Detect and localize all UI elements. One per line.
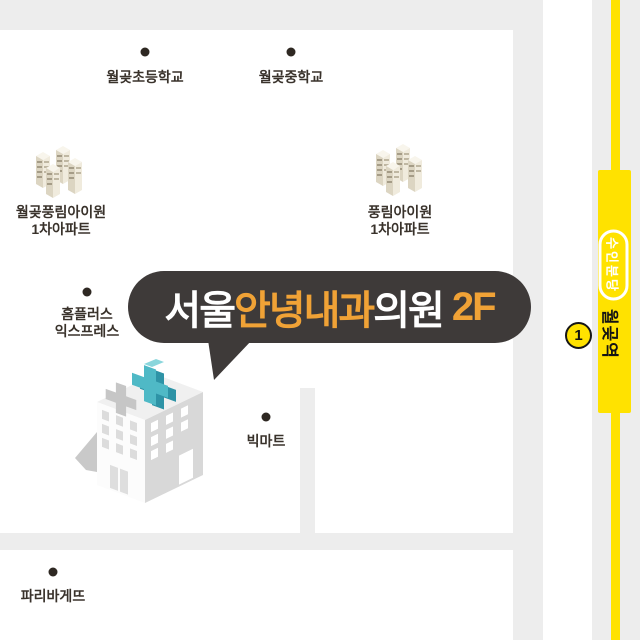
apartment-tower — [386, 162, 400, 196]
station-exit-number: 1 — [574, 327, 582, 344]
apartment-right-label-line2: 1차아파트 — [368, 221, 432, 238]
bubble-tail — [198, 338, 258, 382]
map-canvas: 수인분당 월곶역 1 월곶초등학교 월곶중학교 월곶풍림아이원 1차아파트 풍림… — [0, 0, 640, 640]
station-exit-1-badge: 1 — [565, 322, 592, 349]
clinic-name-bubble: 서울안녕내과의원 2F — [128, 271, 531, 343]
apartment-left-label-line1: 월곶풍림아이원 — [16, 204, 106, 221]
apartment-buildings-icon — [26, 144, 94, 200]
elementary-school-label: 월곶초등학교 — [106, 69, 183, 86]
road-horizontal-upper — [0, 0, 543, 30]
apartment-tower — [68, 158, 82, 194]
apartment-right-label-line1: 풍림아이원 — [368, 204, 432, 221]
road-horizontal-lower — [0, 533, 543, 550]
apartment-tower — [408, 156, 422, 192]
apartment-buildings-icon — [366, 142, 434, 198]
apartment-left-label-line2: 1차아파트 — [16, 221, 106, 238]
bigmart-dot — [262, 413, 271, 422]
building-shadow — [75, 432, 97, 472]
clinic-name-segment: 안녕내과 — [234, 278, 373, 336]
apartment-left-label: 월곶풍림아이원 1차아파트 — [16, 204, 106, 238]
apartment-right-label: 풍림아이원 1차아파트 — [368, 204, 432, 238]
subway-line-badge: 수인분당 — [599, 230, 629, 301]
homeplus-label: 홈플러스 익스프레스 — [55, 306, 119, 340]
bigmart-label: 빅마트 — [247, 433, 286, 450]
medical-cross-top — [144, 359, 164, 367]
clinic-floor-segment: 2F — [443, 285, 495, 330]
middle-school-label: 월곶중학교 — [259, 69, 323, 86]
homeplus-dot — [83, 288, 92, 297]
subway-line-badge-label: 수인분당 — [604, 237, 623, 293]
clinic-name-segment: 의원 — [373, 278, 443, 336]
middle-school-dot — [287, 48, 296, 57]
clinic-building-icon — [68, 352, 208, 508]
clinic-name-segment: 서울 — [164, 278, 234, 336]
road-vertical-middle — [300, 388, 315, 534]
homeplus-label-line1: 홈플러스 — [55, 306, 119, 323]
apartment-tower — [46, 164, 60, 198]
station-name-label: 월곶역 — [602, 302, 622, 366]
paris-baguette-label: 파리바게뜨 — [21, 588, 85, 605]
paris-baguette-dot — [49, 568, 58, 577]
homeplus-label-line2: 익스프레스 — [55, 323, 119, 340]
elementary-school-dot — [141, 48, 150, 57]
